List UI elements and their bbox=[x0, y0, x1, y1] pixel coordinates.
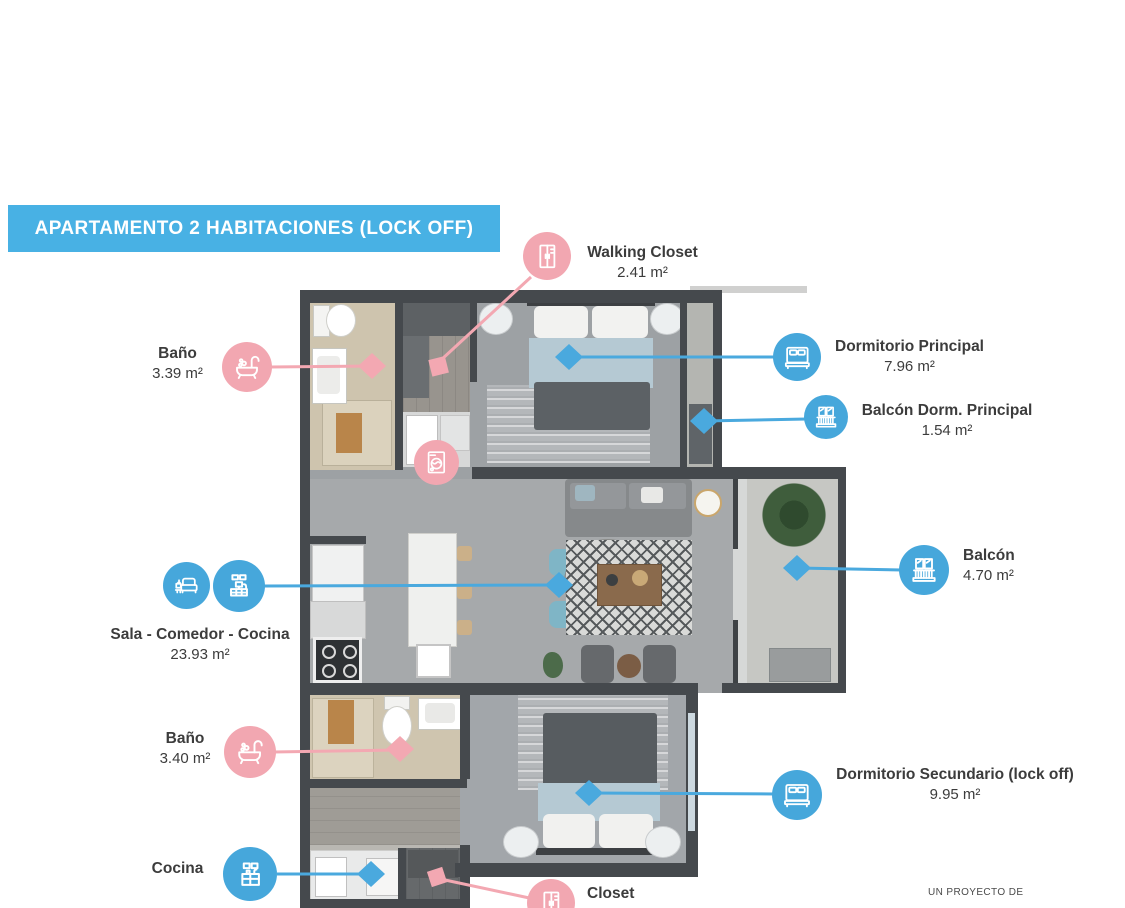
wardrobe-icon bbox=[523, 232, 571, 280]
room-label: Closet bbox=[587, 884, 677, 904]
sofa-glyph bbox=[171, 570, 201, 600]
room-label: Walking Closet bbox=[570, 243, 715, 263]
room-area: 9.95 m² bbox=[825, 785, 1085, 805]
marker-banio-principal bbox=[358, 353, 386, 379]
callout-banio-principal: Baño 3.39 m² bbox=[135, 344, 220, 384]
room-label: Sala - Comedor - Cocina bbox=[95, 625, 305, 645]
callout-balcon: Balcón 4.70 m² bbox=[963, 546, 1053, 586]
marker-banio-secundario bbox=[386, 736, 414, 762]
marker-dormitorio-principal bbox=[555, 344, 583, 370]
room-label: Dormitorio Secundario (lock off) bbox=[825, 765, 1085, 785]
room-area: 23.93 m² bbox=[95, 645, 305, 665]
room-label: Balcón bbox=[963, 546, 1053, 566]
balcony-icon bbox=[804, 395, 848, 439]
room-label: Cocina bbox=[135, 859, 220, 879]
bathtub-icon bbox=[222, 342, 272, 392]
callout-cocina: Cocina bbox=[135, 859, 220, 879]
callout-banio-secundario: Baño 3.40 m² bbox=[140, 729, 230, 769]
marker-walking-closet bbox=[428, 356, 449, 377]
callout-dormitorio-secundario: Dormitorio Secundario (lock off) 9.95 m² bbox=[825, 765, 1085, 805]
marker-balcon bbox=[783, 555, 811, 581]
marker-dormitorio-secundario bbox=[575, 780, 603, 806]
sofa-icon bbox=[163, 562, 210, 609]
callout-walking-closet: Walking Closet 2.41 m² bbox=[570, 243, 715, 283]
callout-balcon-dorm-principal: Balcón Dorm. Principal 1.54 m² bbox=[852, 401, 1042, 441]
project-note: UN PROYECTO DE bbox=[928, 887, 1023, 898]
room-area: 4.70 m² bbox=[963, 566, 1053, 586]
room-area: 7.96 m² bbox=[822, 357, 997, 377]
balcony-glyph bbox=[812, 403, 840, 431]
balcony-icon bbox=[899, 545, 949, 595]
room-label: Baño bbox=[140, 729, 230, 749]
marker-cocina bbox=[357, 861, 385, 887]
wardrobe-glyph bbox=[532, 241, 563, 272]
marker-balcon-dorm-principal bbox=[690, 408, 718, 434]
bathtub-icon bbox=[224, 726, 276, 778]
room-area: 1.54 m² bbox=[852, 421, 1042, 441]
balcony-glyph bbox=[908, 554, 940, 586]
room-area: 3.40 m² bbox=[140, 749, 230, 769]
bed-glyph bbox=[782, 342, 813, 373]
callout-dormitorio-principal: Dormitorio Principal 7.96 m² bbox=[822, 337, 997, 377]
kitchen-glyph bbox=[233, 857, 268, 892]
room-label: Balcón Dorm. Principal bbox=[852, 401, 1042, 421]
bathtub-glyph bbox=[231, 351, 263, 383]
wardrobe-glyph bbox=[536, 888, 567, 908]
callout-sala-comedor-cocina: Sala - Comedor - Cocina 23.93 m² bbox=[95, 625, 305, 665]
room-label: Dormitorio Principal bbox=[822, 337, 997, 357]
bed-icon bbox=[772, 770, 822, 820]
tv-console-icon bbox=[213, 560, 265, 612]
bed-icon bbox=[773, 333, 821, 381]
room-area: 3.39 m² bbox=[135, 364, 220, 384]
marker-closet bbox=[427, 867, 447, 887]
bathtub-glyph bbox=[233, 735, 266, 768]
floorplan-page: APARTAMENTO 2 HABITACIONES (LOCK OFF) bbox=[0, 0, 1125, 908]
tv-console-glyph bbox=[222, 569, 255, 602]
bed-glyph bbox=[781, 779, 813, 811]
callout-closet: Closet bbox=[587, 884, 677, 904]
room-label: Baño bbox=[135, 344, 220, 364]
marker-sala-comedor-cocina bbox=[545, 572, 573, 598]
room-area: 2.41 m² bbox=[570, 263, 715, 283]
kitchen-icon bbox=[223, 847, 277, 901]
